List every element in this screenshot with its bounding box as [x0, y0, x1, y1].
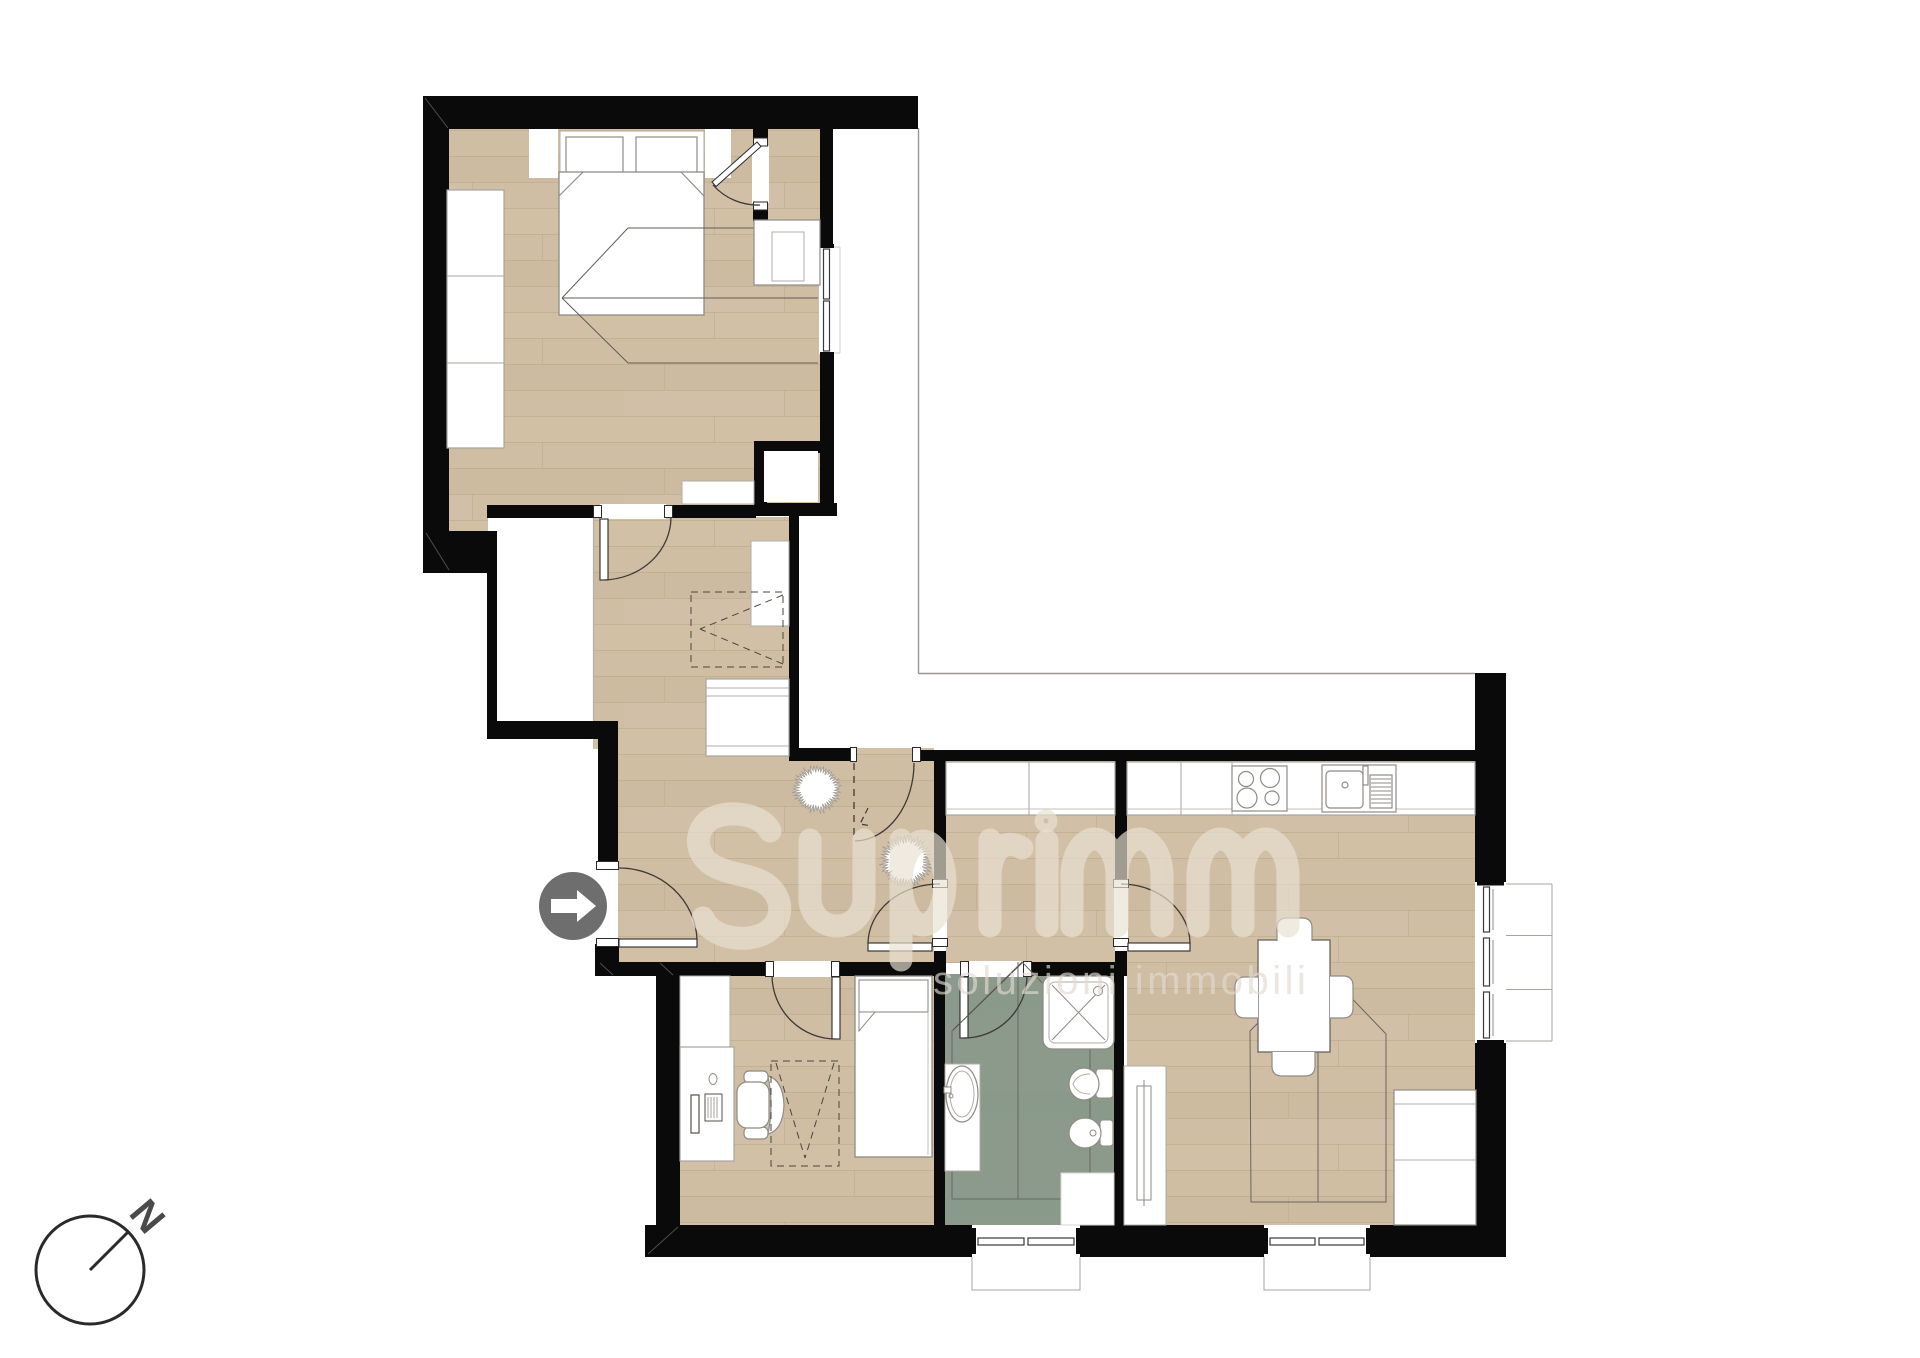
- svg-text:soluzioni immobili: soluzioni immobili: [933, 959, 1309, 1003]
